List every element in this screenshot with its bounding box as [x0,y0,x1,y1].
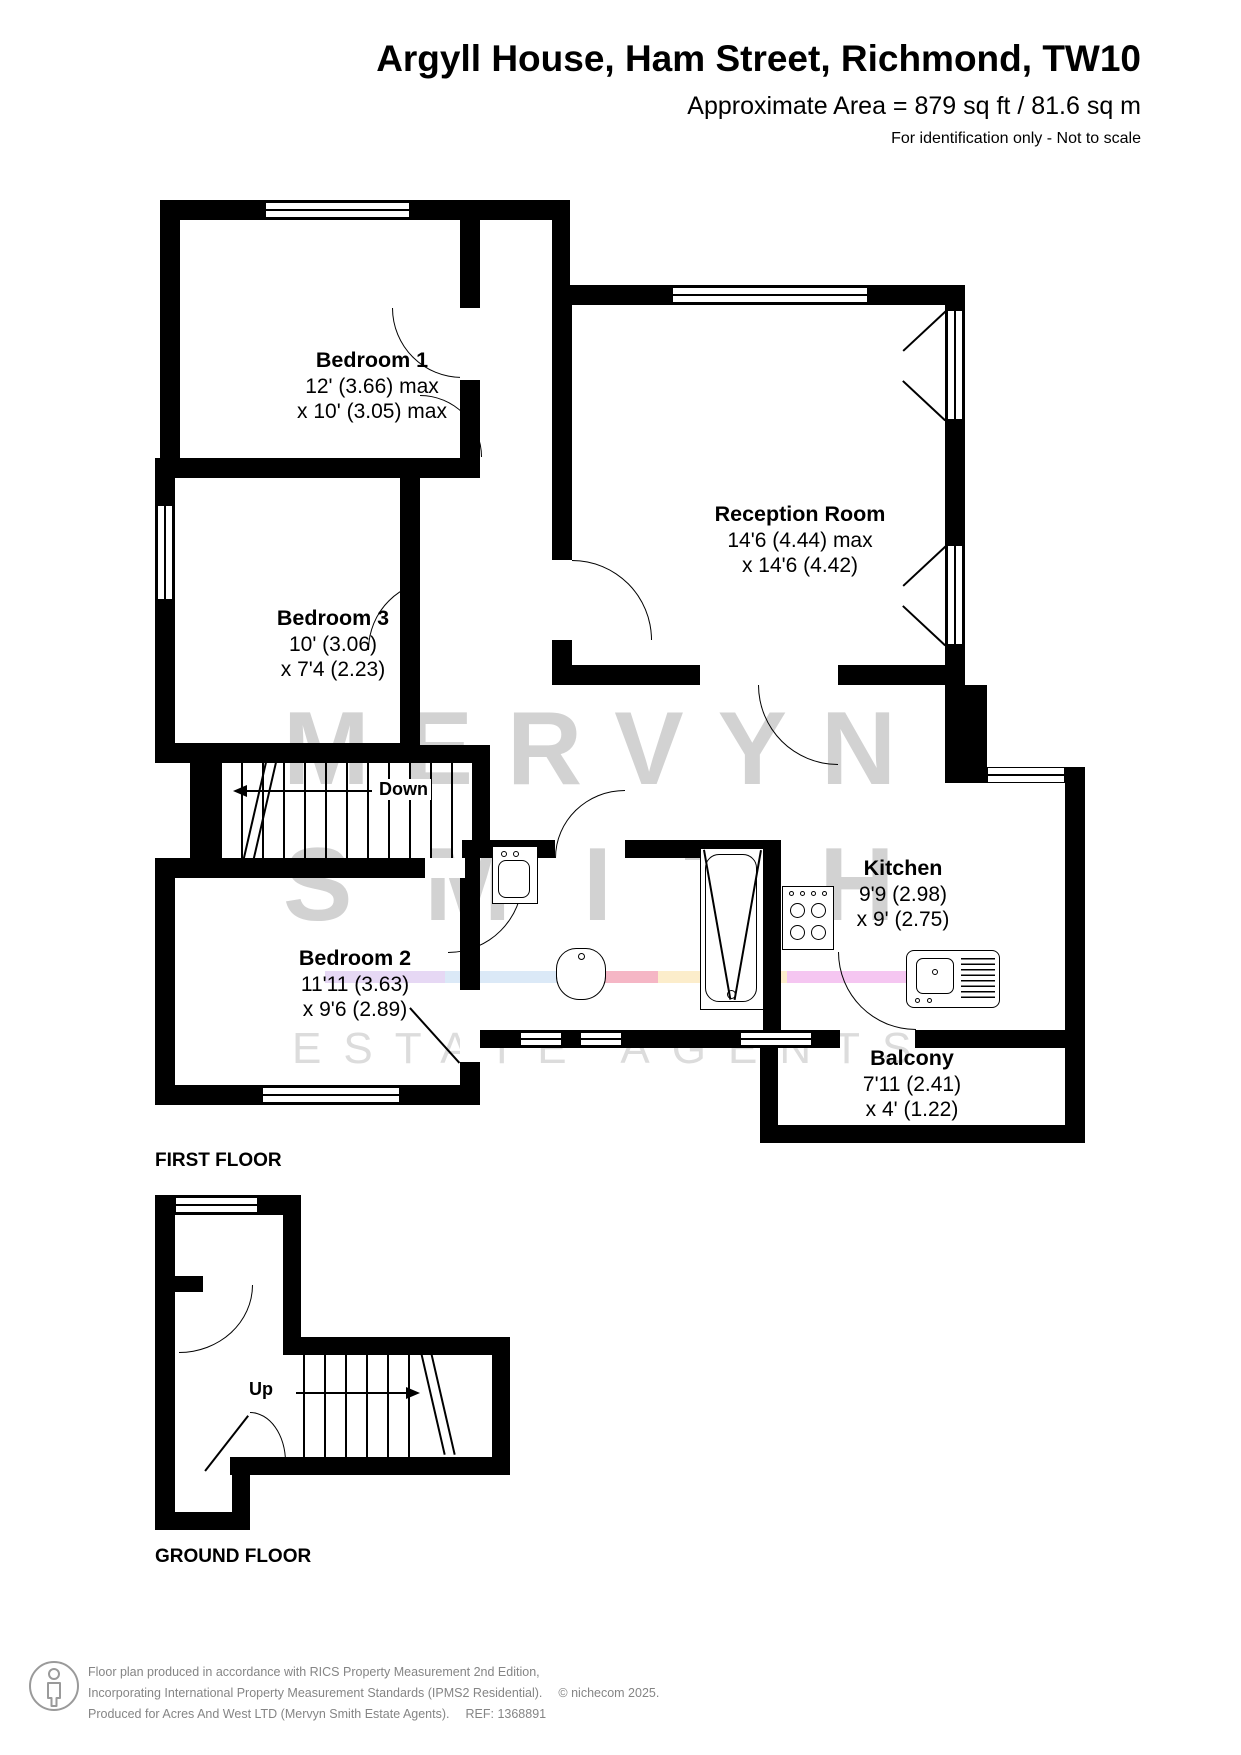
door-opening [552,560,572,640]
window [987,767,1065,783]
room-name: Bedroom 2 [299,946,411,972]
wall [190,763,220,858]
footer-line2: Incorporating International Property Mea… [88,1683,542,1704]
room-name: Reception Room [715,502,886,528]
wall [945,685,987,783]
hob-control [822,891,827,896]
person-icon [28,1660,80,1717]
wall [1065,767,1085,1143]
stairs-arrowhead [406,1387,420,1399]
room-dim: 9'9 (2.98) [857,882,950,908]
tap-dot [513,851,519,857]
room-label-kitchen: Kitchen 9'9 (2.98) x 9' (2.75) [857,856,950,933]
stairs-down-label: Down [376,779,431,800]
window [947,310,963,420]
room-label-bedroom1: Bedroom 1 12' (3.66) max x 10' (3.05) ma… [297,348,447,425]
ground-floor-label: GROUND FLOOR [155,1546,311,1568]
wall [283,1337,510,1355]
tap-dot [501,851,507,857]
hob-control [800,891,805,896]
hob [782,886,834,950]
bathtub-tap-dot [727,990,736,999]
hob-burner [811,925,826,940]
hob-control [789,891,794,896]
room-dim: x 14'6 (4.42) [715,553,886,579]
stairs-arrow [246,790,372,792]
door-arc [250,1412,286,1462]
floor-plan-page: Argyll House, Ham Street, Richmond, TW10… [0,0,1241,1755]
brand-stripe-segment [597,971,658,983]
door-arc [179,1285,253,1353]
room-label-bedroom3: Bedroom 3 10' (3.06) x 7'4 (2.23) [277,606,389,683]
footer-copyright: © nichecom 2025. [558,1683,659,1704]
wall [283,1195,301,1337]
room-label-balcony: Balcony 7'11 (2.41) x 4' (1.22) [863,1046,961,1123]
washbasin-bowl [498,860,530,898]
room-name: Bedroom 3 [277,606,389,632]
window [262,1087,400,1103]
page-title: Argyll House, Ham Street, Richmond, TW10 [376,38,1141,80]
hob-burner [790,903,805,918]
wall [232,1475,250,1515]
toilet-flush-dot [578,953,585,960]
window [740,1032,812,1046]
room-dim: x 9' (2.75) [857,907,950,933]
footer: Floor plan produced in accordance with R… [88,1662,659,1725]
footer-ref: REF: 1368891 [466,1704,547,1725]
room-name: Bedroom 1 [297,348,447,374]
door-arc [838,952,916,1030]
room-label-reception: Reception Room 14'6 (4.44) max x 14'6 (4… [715,502,886,579]
wall [552,200,570,305]
room-dim: 12' (3.66) max [297,374,447,400]
room-dim: x 9'6 (2.89) [299,997,411,1023]
room-dim: 14'6 (4.44) max [715,528,886,554]
room-dim: x 10' (3.05) max [297,399,447,425]
footer-line1: Floor plan produced in accordance with R… [88,1662,540,1683]
window [580,1032,622,1046]
hob-burner [811,903,826,918]
window [157,505,173,600]
wall [763,840,781,1048]
door-opening [425,858,465,878]
room-dim: 10' (3.06) [277,632,389,658]
sink-tap-dot [932,969,938,975]
window [520,1032,562,1046]
toilet [556,948,606,1000]
washbasin [492,846,538,904]
room-dim: x 7'4 (2.23) [277,657,389,683]
window [175,1197,258,1213]
wall [492,1337,510,1475]
stairs-arrowhead [233,785,247,797]
first-floor-label: FIRST FLOOR [155,1150,282,1172]
window [265,202,410,218]
wall [155,1195,175,1530]
room-label-bedroom2: Bedroom 2 11'11 (3.63) x 9'6 (2.89) [299,946,411,1023]
sink-drainer [961,958,995,1000]
footer-line3: Produced for Acres And West LTD (Mervyn … [88,1704,450,1725]
wall [760,1125,1085,1143]
sink-dot [915,998,920,1003]
room-dim: 11'11 (3.63) [299,972,411,998]
hob-control [811,891,816,896]
sink-dot [927,998,932,1003]
room-name: Kitchen [857,856,950,882]
hob-burner [790,925,805,940]
approx-area: Approximate Area = 879 sq ft / 81.6 sq m [687,92,1141,121]
bathtub-inner [705,854,757,1002]
door-opening [460,990,480,1062]
stairs-arrow [296,1392,408,1394]
wall [155,1512,250,1530]
scale-note: For identification only - Not to scale [891,130,1141,148]
stairs-up-label: Up [246,1379,276,1400]
window [672,287,868,303]
room-name: Balcony [863,1046,961,1072]
door-opening [700,665,838,685]
sink-bowl [916,958,954,994]
stairs-ground-floor [303,1355,425,1457]
bathtub [700,848,764,1010]
door-opening [420,578,440,650]
kitchen-sink [906,950,1000,1008]
window [947,545,963,645]
room-dim: 7'11 (2.41) [863,1072,961,1098]
room-dim: x 4' (1.22) [863,1097,961,1123]
door-opening [460,308,480,380]
